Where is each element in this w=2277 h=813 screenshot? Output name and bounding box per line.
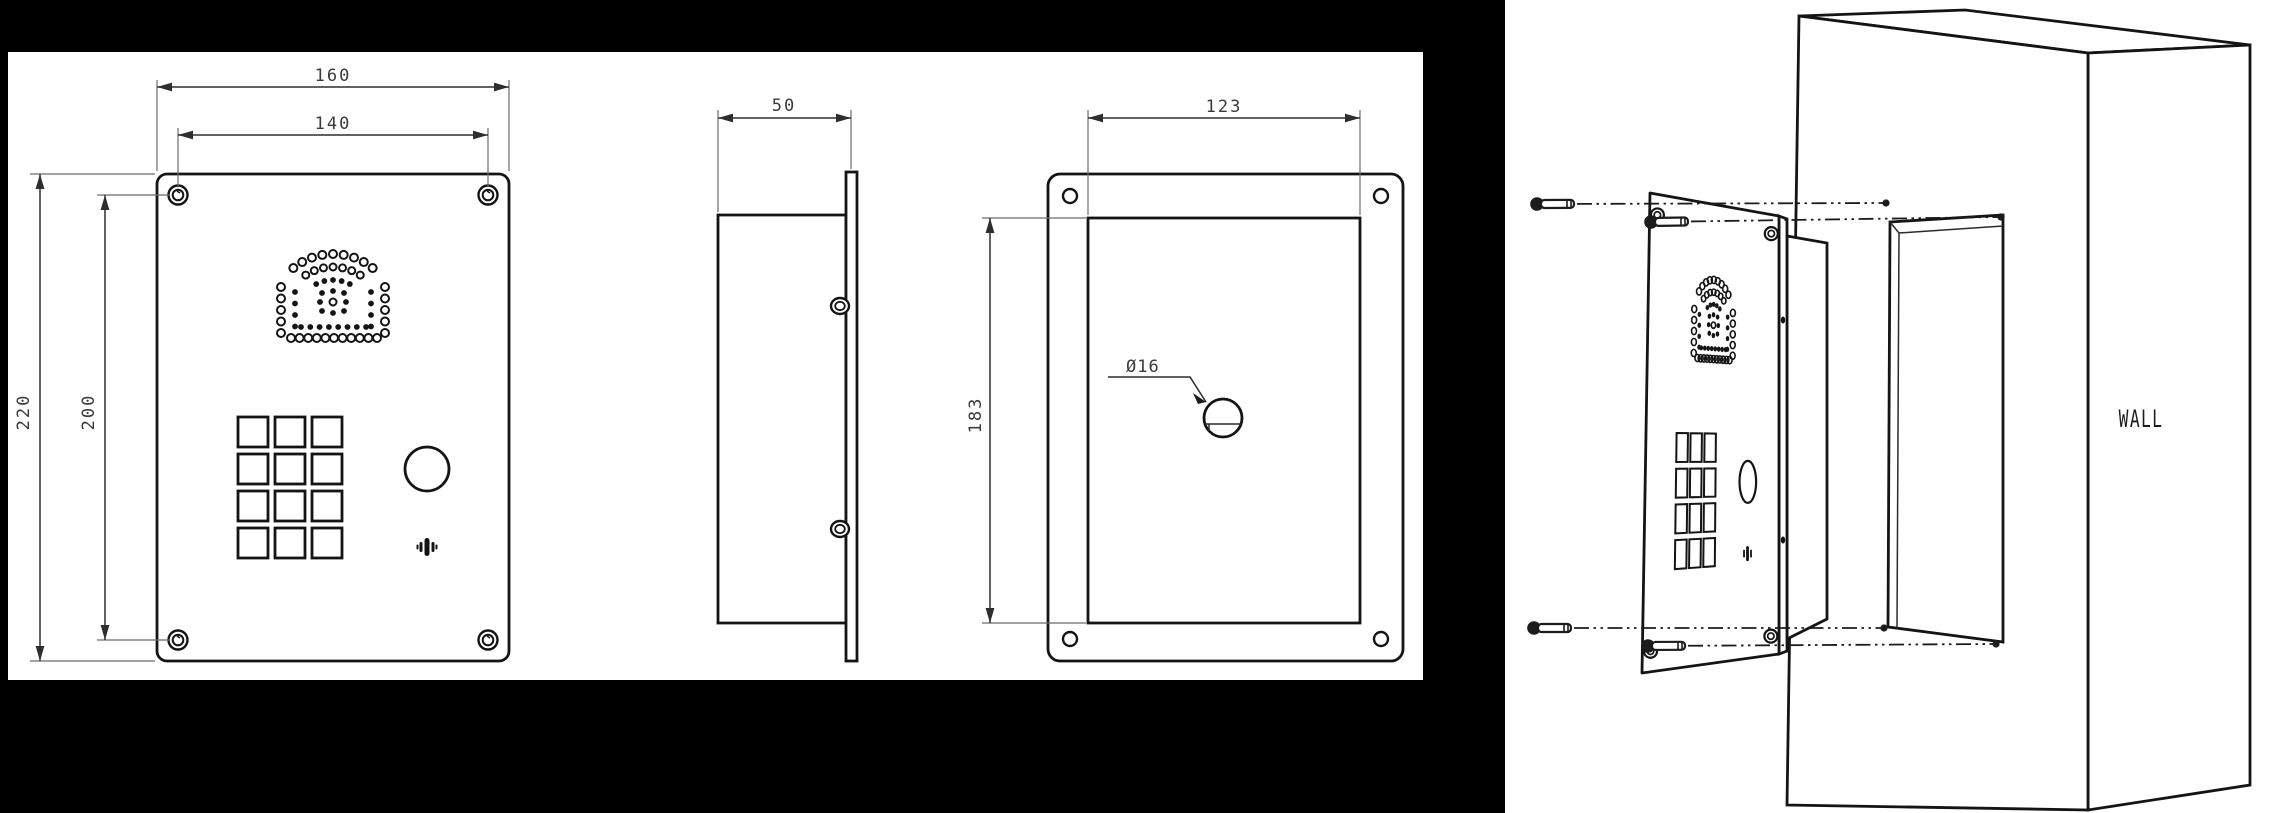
grille-dot [341,290,347,296]
grille-dot [1707,322,1711,327]
wall-label: WALL [2119,405,2164,433]
grille-dot [1699,345,1703,350]
grille-dot [1724,347,1728,352]
grille-dot [298,324,304,330]
grille-dot [354,324,360,330]
screw-icon [1764,630,1777,643]
grille-dot [339,278,345,284]
drill-point-marker [1992,640,1999,647]
side-box-outline [718,215,846,623]
grille-dot [292,324,298,330]
grille-dot [330,310,336,316]
grille-dot [1710,346,1714,351]
grille-dot [1717,346,1721,351]
keypad-key [312,491,342,521]
screw-icon [831,298,849,314]
grille-dot [317,324,323,330]
grille-dot [345,324,351,330]
grille-dot [319,308,325,314]
grille-dot [292,312,298,318]
grille-dot [307,324,313,330]
grille-dot [1698,312,1702,317]
keypad-key [238,454,268,484]
grille-dot [1703,345,1707,350]
grille-dot [319,290,325,296]
mic-bar [1746,546,1749,561]
bolt-shaft [1541,200,1574,208]
keypad-key [1704,468,1716,497]
grille-dot [335,324,341,330]
side-faceplate-edge [846,172,857,661]
grille-dot [1697,323,1701,328]
flange-hole [1374,189,1388,203]
grille-dot [341,308,347,314]
grille-dot [368,289,374,295]
grille-dot [1715,303,1719,308]
grille-dot [1726,314,1730,319]
grille-dot [1726,336,1730,341]
edge-screw [1781,317,1785,324]
flange-hole [1374,632,1388,646]
grille-dot [1707,331,1711,336]
mic-bar [1743,550,1745,558]
mic-bar [420,542,423,552]
grille-dot [1708,314,1712,319]
grille-dot [313,281,319,287]
dim-depth: 50 [772,96,796,116]
bolt-shaft [1655,217,1688,225]
grille-dot [1697,334,1701,339]
keypad-key [1676,469,1688,498]
keypad-key [312,454,342,484]
screw-icon [479,186,498,205]
grille-dot [326,324,332,330]
grille-dot [330,277,336,283]
grille-dot [321,278,327,284]
bolt-shaft [1538,624,1571,632]
wall-recess-opening [1888,215,2003,642]
screw-icon [169,631,188,650]
keypad-key [312,417,342,447]
technical-drawing-page: 160 140 220 200 50 Ø16 123 183 [0,0,2277,813]
keypad-key [275,454,305,484]
wall-side-face [2088,45,2250,810]
keypad-key [1704,503,1716,532]
keypad-key [1690,468,1702,497]
screw-icon [479,631,498,650]
dim-cutout-height: 183 [966,397,986,434]
grille-dot [1709,302,1713,307]
grille-dot [1726,325,1730,330]
dim-height: 220 [14,394,34,431]
grille-dot [368,324,374,330]
keypad-key [1703,538,1715,567]
flange-hole [1063,189,1077,203]
iso-back-box [1787,236,1827,639]
keypad-key [1676,433,1688,462]
grille-dot [1716,314,1720,319]
grille-dot [330,288,336,294]
keypad-key [1690,433,1702,462]
mic-bar [425,538,430,556]
screw-icon [169,186,188,205]
keypad-key [238,417,268,447]
keypad-key [275,491,305,521]
grille-dot [1720,347,1724,352]
edge-screw [1781,537,1785,544]
drawing-canvas: 160 140 220 200 50 Ø16 123 183 [0,0,2277,813]
grille-dot [317,299,323,305]
keypad-key [1689,504,1701,533]
grille-dot [1716,323,1720,328]
dim-hole-diameter: Ø16 [1126,357,1160,377]
call-button [405,447,449,491]
grille-dot [1712,333,1716,338]
keypad-key [312,528,342,558]
cable-entry-hole [1204,399,1242,437]
call-button [1740,461,1757,503]
keypad-key [1675,540,1687,570]
bolt-shaft [1652,642,1685,650]
dim-hole-spacing-width: 140 [315,114,352,134]
keypad-key [275,417,305,447]
keypad-key [238,491,268,521]
grille-dot [1718,306,1722,311]
grille-dot [1712,302,1716,307]
grille-dot [1706,346,1710,351]
bolt-centerline [1577,203,1886,204]
grille-dot [368,301,374,307]
grille-dot [292,301,298,307]
drill-point-marker [1882,199,1889,206]
flange-hole [1063,632,1077,646]
grille-dot [363,324,369,330]
dim-cutout-width: 123 [1206,97,1243,117]
dim-hole-spacing-height: 200 [79,394,99,431]
keypad-key [275,528,305,558]
grille-dot [347,281,353,287]
grille-dot [368,312,374,318]
drill-point-marker [1880,624,1887,631]
mic-bar [436,545,438,550]
grille-dot [343,299,349,305]
grille-dot [1716,331,1720,336]
mic-bar [432,542,435,552]
mic-bar [417,545,419,550]
grille-dot [1712,312,1716,317]
screw-icon [1765,227,1778,240]
grille-dot [292,289,298,295]
keypad-key [1689,539,1701,568]
grille-dot [1706,305,1710,310]
screw-icon [831,521,849,537]
dim-width: 160 [315,66,352,86]
keypad-key [238,528,268,558]
mic-bar [1750,550,1752,558]
keypad-key [1675,504,1687,533]
keypad-key [1704,433,1716,461]
grille-dot [1713,346,1717,351]
